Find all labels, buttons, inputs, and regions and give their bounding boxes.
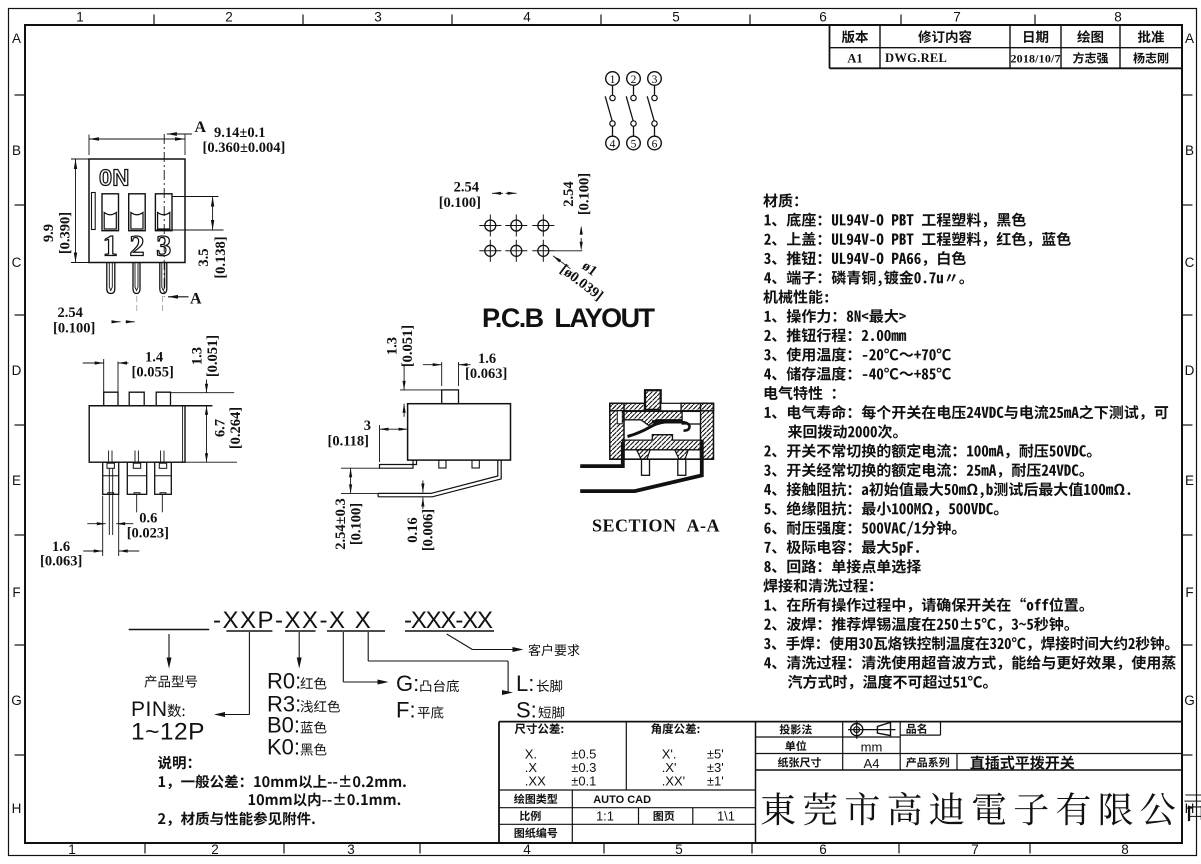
svg-text:4: 4: [523, 10, 531, 25]
svg-text:A: A: [1185, 31, 1194, 46]
svg-text:[0.390]: [0.390]: [58, 212, 74, 254]
svg-text:3: 3: [347, 842, 355, 857]
svg-text:±1': ±1': [707, 774, 724, 789]
svg-text:2.54±0.3: 2.54±0.3: [333, 498, 349, 549]
svg-text:E: E: [1185, 473, 1194, 488]
svg-text:B: B: [12, 143, 21, 158]
svg-text:0.16: 0.16: [405, 517, 421, 542]
svg-text:-XXX-XX: -XXX-XX: [404, 607, 493, 634]
svg-text:AUTO CAD: AUTO CAD: [593, 794, 651, 806]
svg-text:3: 3: [364, 418, 371, 434]
svg-text:SECTION A-A: SECTION A-A: [592, 516, 720, 536]
svg-text:[0.063]: [0.063]: [40, 554, 82, 570]
svg-text:3: 3: [652, 74, 658, 86]
svg-text:2.54: 2.54: [454, 180, 479, 196]
svg-text:5: 5: [675, 842, 683, 857]
svg-text:8: 8: [1114, 10, 1122, 25]
svg-text:1: 1: [68, 842, 76, 857]
svg-text:1:1: 1:1: [596, 809, 614, 824]
svg-text:A: A: [12, 31, 21, 46]
svg-text:1~12P: 1~12P: [131, 719, 205, 746]
svg-text:G: G: [11, 693, 22, 708]
svg-text:.XX: .XX: [525, 774, 546, 789]
svg-text:.XX': .XX': [662, 774, 685, 789]
svg-text:1.3: 1.3: [190, 347, 206, 365]
svg-text:[0.051]: [0.051]: [205, 335, 221, 377]
svg-text:[0.055]: [0.055]: [132, 365, 174, 381]
svg-text:[0.051]: [0.051]: [400, 325, 416, 367]
svg-text:P.C.B LAYOUT: P.C.B LAYOUT: [482, 303, 656, 333]
svg-text:H: H: [12, 801, 22, 816]
svg-text:1.3: 1.3: [385, 337, 401, 355]
svg-text:1: 1: [76, 10, 84, 25]
svg-text:B: B: [1185, 143, 1194, 158]
svg-text:F:: F:: [396, 698, 416, 723]
svg-text:D: D: [12, 363, 22, 378]
svg-text:[0.100]: [0.100]: [439, 195, 481, 211]
svg-text:9.14±0.1: 9.14±0.1: [214, 125, 265, 141]
svg-text:A: A: [190, 290, 202, 307]
svg-text:mm: mm: [861, 740, 883, 755]
svg-text:K0:: K0:: [267, 735, 300, 760]
svg-text:4: 4: [610, 139, 616, 151]
svg-text:[0.138]: [0.138]: [213, 236, 229, 278]
svg-text:3.5: 3.5: [196, 248, 212, 266]
svg-text:L:: L:: [516, 671, 534, 696]
svg-text:1: 1: [610, 74, 616, 86]
svg-text:±0.1: ±0.1: [571, 774, 596, 789]
svg-text:5: 5: [672, 10, 680, 25]
svg-text:A1: A1: [847, 52, 862, 66]
svg-text:6: 6: [652, 139, 658, 151]
svg-text:A: A: [195, 119, 207, 136]
svg-text:6: 6: [819, 10, 827, 25]
svg-text:S:: S:: [516, 698, 537, 723]
svg-text:[0.118]: [0.118]: [328, 434, 369, 450]
svg-text:G:: G:: [396, 671, 419, 696]
svg-text:C: C: [1185, 255, 1195, 270]
svg-text:C: C: [12, 255, 22, 270]
svg-text:[0.360±0.004]: [0.360±0.004]: [203, 140, 286, 156]
svg-text:7: 7: [953, 10, 961, 25]
svg-text:F: F: [12, 585, 20, 600]
svg-text:2018/10/7: 2018/10/7: [1011, 52, 1061, 66]
svg-text:1.4: 1.4: [145, 350, 163, 366]
svg-text:[0.063]: [0.063]: [465, 366, 507, 382]
svg-text:6.7: 6.7: [213, 419, 229, 437]
svg-text:[0.100]: [0.100]: [349, 503, 365, 545]
svg-text:D: D: [1185, 363, 1195, 378]
svg-text:3: 3: [374, 10, 382, 25]
svg-text:2.54: 2.54: [58, 305, 83, 321]
svg-text:A4: A4: [864, 756, 880, 771]
svg-text:2.54: 2.54: [561, 181, 577, 206]
svg-text:[0.006]: [0.006]: [421, 509, 437, 551]
svg-text:6: 6: [819, 842, 827, 857]
svg-text:G: G: [1184, 693, 1195, 708]
svg-text:4: 4: [523, 842, 531, 857]
svg-text:9.9: 9.9: [41, 224, 57, 242]
svg-text:[0.264]: [0.264]: [228, 407, 244, 449]
svg-text:2: 2: [631, 74, 637, 86]
svg-text:2: 2: [130, 230, 145, 263]
svg-text:0N: 0N: [99, 165, 130, 191]
svg-text:8: 8: [1121, 842, 1129, 857]
svg-text:F: F: [1185, 585, 1193, 600]
svg-text:[0.100]: [0.100]: [53, 321, 95, 337]
svg-text:2: 2: [211, 842, 219, 857]
svg-text:[0.100]: [0.100]: [577, 173, 593, 215]
svg-text:DWG.REL: DWG.REL: [885, 51, 947, 65]
svg-text:1: 1: [103, 230, 118, 263]
svg-text:[0.023]: [0.023]: [127, 525, 169, 541]
svg-text:-XXP-XX-X X: -XXP-XX-X X: [213, 607, 372, 634]
svg-text:3: 3: [156, 230, 171, 263]
svg-text:5: 5: [631, 139, 637, 151]
svg-text:1\1: 1\1: [717, 809, 735, 824]
svg-text:R0:: R0:: [267, 669, 301, 694]
svg-text:2: 2: [225, 10, 233, 25]
svg-text:E: E: [12, 473, 21, 488]
svg-text:1.6: 1.6: [478, 351, 496, 367]
svg-text:7: 7: [971, 842, 979, 857]
svg-text:0.6: 0.6: [139, 510, 157, 526]
